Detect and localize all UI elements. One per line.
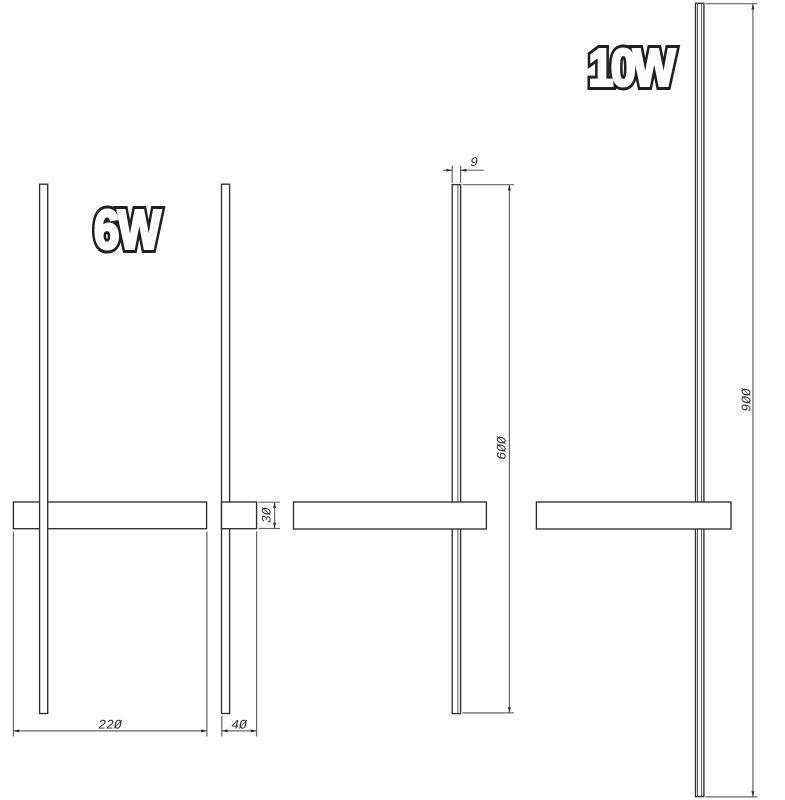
svg-text:9: 9 (470, 155, 478, 170)
svg-text:9ØØ: 9ØØ (739, 387, 754, 412)
svg-text:10W: 10W (589, 40, 676, 98)
svg-text:22Ø: 22Ø (98, 717, 123, 732)
svg-text:4Ø: 4Ø (231, 717, 248, 732)
svg-text:6W: 6W (94, 199, 162, 261)
svg-text:6ØØ: 6ØØ (494, 435, 509, 460)
svg-text:3Ø: 3Ø (260, 506, 275, 523)
